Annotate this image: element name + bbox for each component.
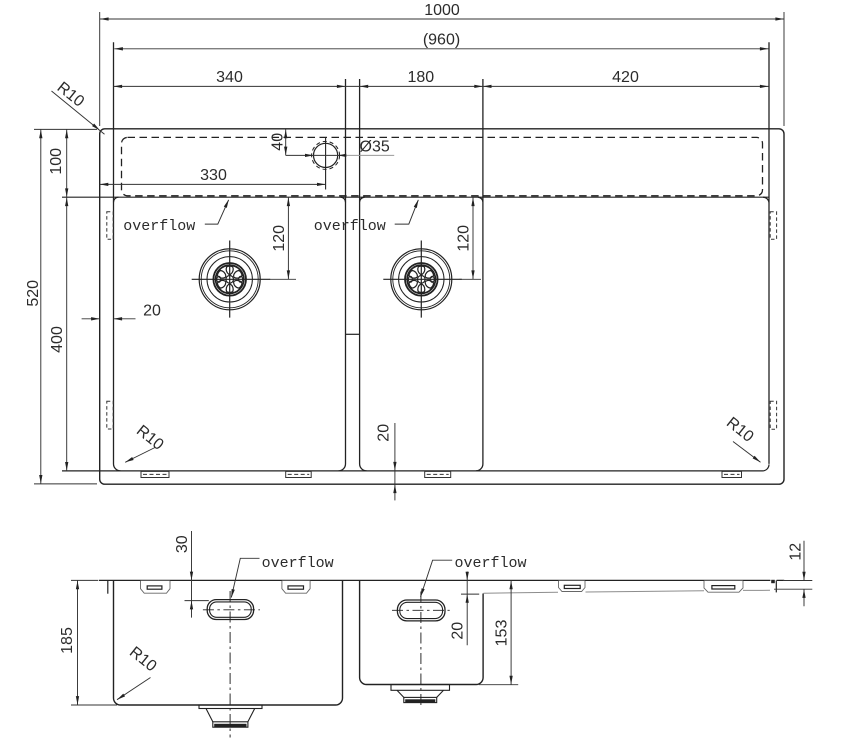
svg-text:Ø35: Ø35	[360, 138, 390, 155]
svg-text:153: 153	[493, 620, 510, 647]
svg-text:20: 20	[450, 622, 467, 640]
svg-text:R10: R10	[126, 644, 160, 676]
svg-text:overflow: overflow	[455, 555, 527, 572]
svg-text:400: 400	[49, 326, 66, 353]
svg-text:overflow: overflow	[123, 218, 195, 235]
svg-text:(960): (960)	[423, 32, 460, 49]
svg-text:520: 520	[25, 280, 42, 307]
svg-text:overflow: overflow	[262, 555, 334, 572]
svg-text:330: 330	[200, 167, 227, 184]
svg-text:120: 120	[271, 225, 288, 252]
svg-text:20: 20	[143, 303, 161, 320]
svg-text:30: 30	[174, 535, 191, 553]
svg-text:R10: R10	[133, 422, 167, 454]
svg-text:20: 20	[376, 424, 393, 442]
svg-text:185: 185	[59, 627, 76, 654]
svg-text:40: 40	[270, 133, 287, 151]
svg-text:180: 180	[407, 69, 434, 86]
svg-text:100: 100	[48, 148, 65, 175]
svg-text:1000: 1000	[424, 2, 460, 19]
svg-text:12: 12	[788, 543, 805, 561]
svg-text:340: 340	[216, 69, 243, 86]
svg-text:120: 120	[456, 225, 473, 252]
svg-text:overflow: overflow	[314, 218, 386, 235]
svg-text:420: 420	[612, 69, 639, 86]
svg-text:R10: R10	[723, 414, 757, 446]
